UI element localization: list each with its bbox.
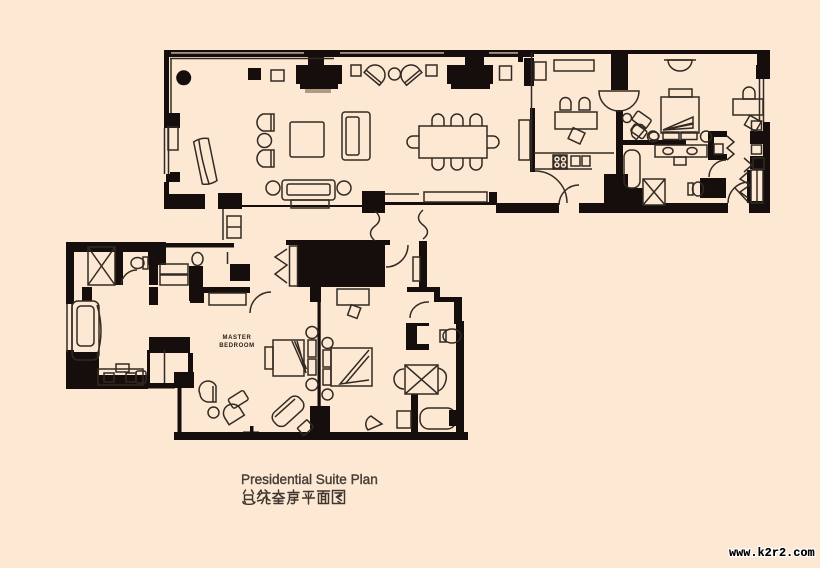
svg-text:MASTER: MASTER — [223, 335, 252, 341]
svg-text:BEDROOM: BEDROOM — [219, 343, 255, 349]
svg-text:Presidential Suite Plan: Presidential Suite Plan — [241, 472, 378, 487]
svg-text:www.k2r2.com: www.k2r2.com — [729, 546, 815, 560]
